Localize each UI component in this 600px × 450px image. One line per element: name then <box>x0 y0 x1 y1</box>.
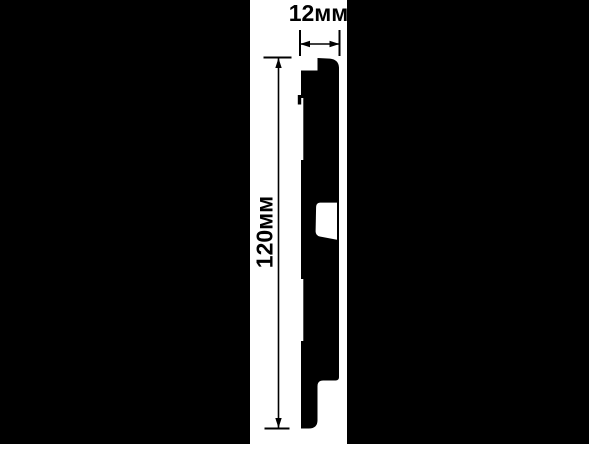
left-black-panel <box>0 0 250 444</box>
right-black-panel <box>347 0 590 444</box>
width-dimension-label: 12мм <box>289 2 349 25</box>
width-dim-arrow-left <box>300 41 310 47</box>
height-dim-arrow-bottom <box>275 418 281 428</box>
rib-recess-upper <box>301 98 303 160</box>
screenshot-stage: 12мм 120мм <box>0 0 600 450</box>
edge-tab <box>297 95 300 105</box>
clip-groove-notch <box>315 203 336 240</box>
rib-recess-lower <box>301 279 303 341</box>
height-dim-arrow-top <box>275 58 281 68</box>
height-dimension-label: 120мм <box>253 195 276 267</box>
profile-outline <box>301 58 339 429</box>
width-dim-arrow-right <box>329 41 339 47</box>
